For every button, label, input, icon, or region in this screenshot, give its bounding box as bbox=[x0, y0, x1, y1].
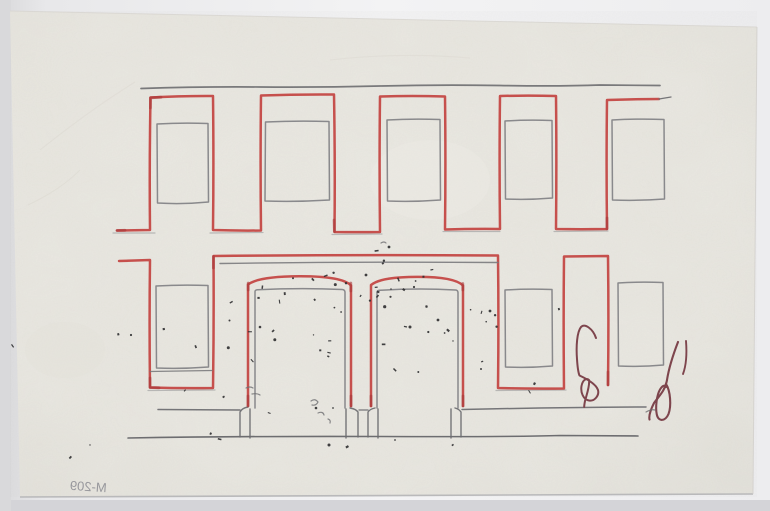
svg-text:M-209: M-209 bbox=[69, 478, 107, 496]
